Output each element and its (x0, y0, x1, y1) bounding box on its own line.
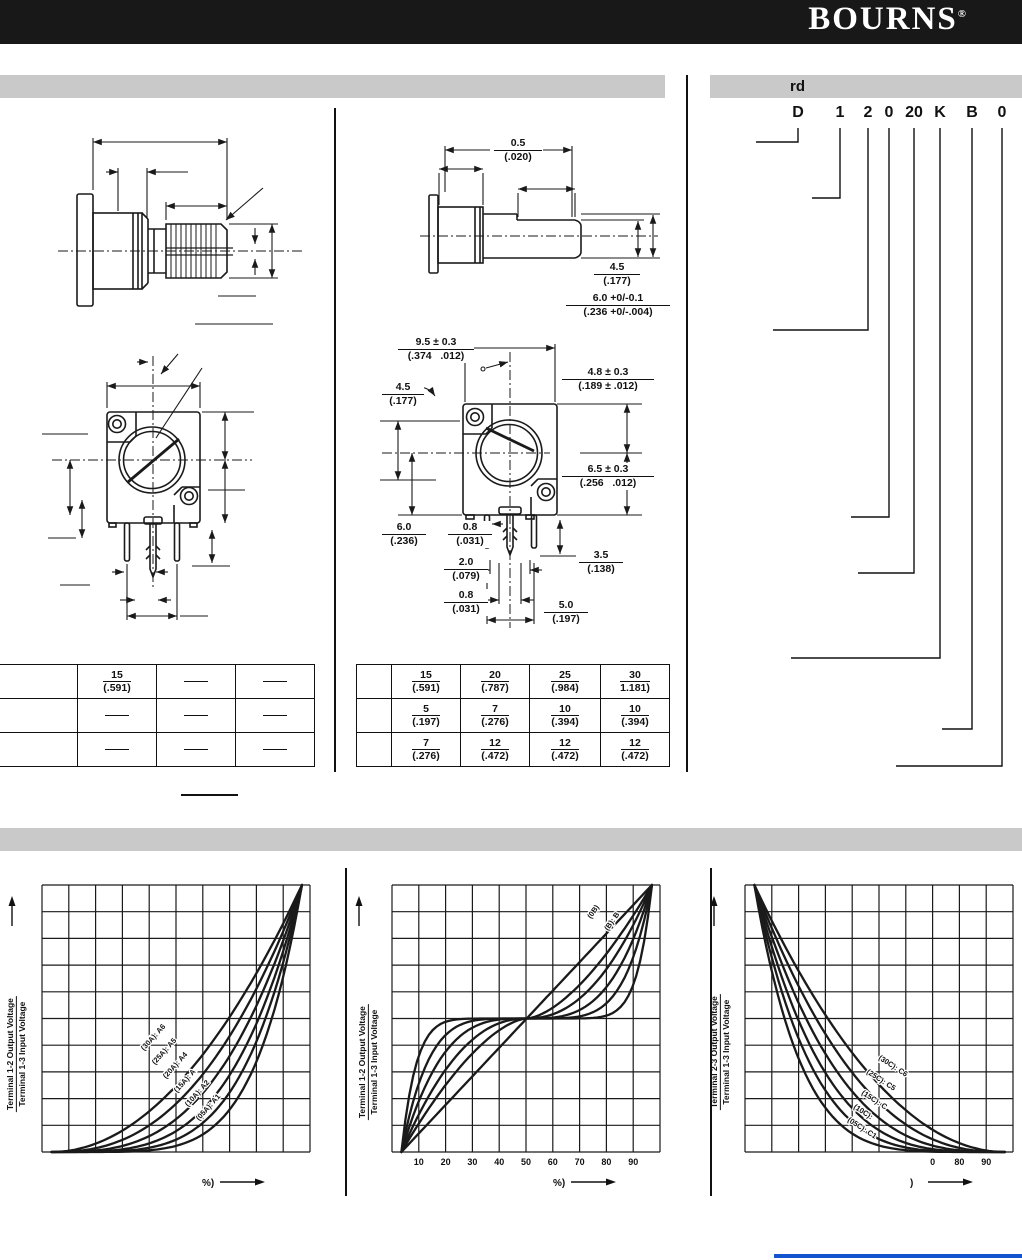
header-bar: BOURNS® (0, 0, 1022, 44)
table-cell (236, 699, 315, 733)
table-cell (236, 665, 315, 699)
x-tick-label: 30 (467, 1157, 477, 1167)
x-tick-label: 20 (441, 1157, 451, 1167)
blank-dash (263, 715, 287, 716)
x-tick-label: 90 (981, 1157, 991, 1167)
footnote-line (181, 794, 238, 796)
registered-mark: ® (958, 8, 966, 20)
table-cell (236, 733, 315, 767)
blank-dash (105, 715, 129, 716)
table-cell: 15(.591) (392, 665, 461, 699)
table-cell: 7(.276) (392, 733, 461, 767)
taper-chart-canvas: (0B)(B): B102030405060708090%) (347, 878, 687, 1206)
x-tick-label: 80 (601, 1157, 611, 1167)
x-axis-label: %) (202, 1178, 214, 1189)
dimension-fraction: 10(.394) (551, 703, 578, 728)
dim-label: 3.5(.138) (579, 549, 623, 576)
x-axis-arrow (255, 1179, 265, 1186)
dim-label: 4.5(.177) (382, 381, 424, 408)
table-cell: 12(.472) (461, 733, 530, 767)
y-axis-label: Terminal 1-2 Output Voltage Terminal 1-3… (5, 939, 27, 1169)
drawing-knurled-shaft-side-view (50, 128, 350, 343)
dimension-fraction: 7(.276) (481, 703, 508, 728)
table-cell: 20(.787) (461, 665, 530, 699)
datasheet-page: { "header": { "logo": "BOURNS", "registe… (0, 0, 1022, 1260)
part-number-leader-lines (690, 95, 1022, 785)
curve-label: (25C): C5 (865, 1067, 898, 1092)
taper-chart-linear-s: Terminal 1-2 Output Voltage Terminal 1-3… (347, 878, 687, 1208)
blank-dash (184, 681, 208, 682)
dim-label: 5.0(.197) (544, 599, 588, 626)
x-axis-label: %) (553, 1178, 565, 1189)
table-cell: 7(.276) (461, 699, 530, 733)
x-tick-label: 0 (930, 1157, 935, 1167)
table-cell: 15(.591) (78, 665, 157, 699)
blank-dash (263, 749, 287, 750)
dim-label: 6.0 +0/-0.1(.236 +0/-.004) (566, 292, 670, 319)
table-cell (0, 665, 78, 699)
taper-chart-reverse-audio: Terminal 2-3 Output Voltage Terminal 1-3… (702, 878, 1022, 1208)
column-divider (686, 75, 688, 772)
x-tick-label: 70 (575, 1157, 585, 1167)
x-tick-label: 80 (954, 1157, 964, 1167)
dimension-lines (42, 354, 254, 620)
taper-chart-audio: Terminal 1-2 Output Voltage Terminal 1-3… (2, 878, 342, 1208)
x-tick-label: 50 (521, 1157, 531, 1167)
y-axis-arrow (9, 896, 16, 906)
dimension-fraction: 10(.394) (621, 703, 648, 728)
dim-label: 4.8 ± 0.3(.189 ± .012) (562, 366, 654, 393)
table-cell (0, 699, 78, 733)
y-axis-arrow (711, 896, 718, 906)
x-tick-label: 60 (548, 1157, 558, 1167)
dimension-fraction: 12(.472) (621, 737, 648, 762)
dimension-table: 15(.591) (0, 664, 315, 767)
taper-chart-canvas: (30A): A6(25A): A5(20A): A4(15A): A(10A)… (2, 878, 342, 1206)
y-axis-arrow (356, 896, 363, 906)
table-cell: 301.181) (601, 665, 670, 699)
footer-accent-line (774, 1254, 1022, 1258)
table-cell (78, 733, 157, 767)
dim-label: 9.5 ± 0.3(.374 .012) (398, 336, 474, 363)
dimension-table-left: 15(.591) (0, 664, 315, 767)
x-tick-label: 90 (628, 1157, 638, 1167)
dim-label: 0.8(.031) (444, 589, 488, 616)
taper-section-bar (0, 828, 1022, 851)
dim-label: 4.5(.177) (594, 261, 640, 288)
y-axis-label: Terminal 1-2 Output Voltage Terminal 1-3… (357, 947, 379, 1177)
table-cell (157, 665, 236, 699)
logo-text: BOURNS (808, 1, 958, 37)
table-cell: 10(.394) (601, 699, 670, 733)
y-axis-label: Terminal 2-3 Output Voltage Terminal 1-3… (709, 937, 731, 1167)
dim-label: 6.0(.236) (382, 521, 426, 548)
drawing-front-view-left (40, 348, 340, 643)
blank-dash (184, 715, 208, 716)
dimension-lines (439, 146, 660, 258)
table-cell: 25(.984) (530, 665, 601, 699)
table-cell (357, 699, 392, 733)
dimension-fraction: 5(.197) (412, 703, 439, 728)
blank-dash (184, 749, 208, 750)
bourns-logo: BOURNS® (808, 1, 966, 38)
dimensions-section-bar (0, 75, 665, 98)
x-axis-arrow (963, 1179, 973, 1186)
x-axis-arrow (606, 1179, 616, 1186)
dimension-fraction: 12(.472) (481, 737, 508, 762)
dimension-fraction: 15(.591) (412, 669, 439, 694)
table-cell (357, 665, 392, 699)
dimension-fraction: 301.181) (620, 669, 650, 694)
table-cell: 5(.197) (392, 699, 461, 733)
dim-label: 6.5 ± 0.3(.256 .012) (562, 463, 654, 490)
taper-chart-canvas: (30C): C6(25C): C5(15C): C(10C):(05C): C… (702, 878, 1022, 1206)
table-cell: 10(.394) (530, 699, 601, 733)
table-cell (0, 733, 78, 767)
x-tick-label: 40 (494, 1157, 504, 1167)
table-cell: 12(.472) (530, 733, 601, 767)
dimension-table-right: 15(.591)20(.787)25(.984)301.181)5(.197)7… (356, 664, 670, 767)
dimension-fraction: 20(.787) (481, 669, 508, 694)
table-cell (78, 699, 157, 733)
table-cell (157, 699, 236, 733)
dim-label: 0.8(.031) (448, 521, 492, 548)
table-cell (157, 733, 236, 767)
blank-dash (263, 681, 287, 682)
x-tick-label: 10 (414, 1157, 424, 1167)
dimension-table: 15(.591)20(.787)25(.984)301.181)5(.197)7… (356, 664, 670, 767)
table-cell: 12(.472) (601, 733, 670, 767)
blank-dash (105, 749, 129, 750)
dimension-fraction: 12(.472) (551, 737, 578, 762)
dimension-fraction: 15(.591) (103, 669, 130, 694)
table-cell (357, 733, 392, 767)
x-axis-label: ) (910, 1178, 913, 1189)
dimension-fraction: 7(.276) (412, 737, 439, 762)
dim-label: 0.5(.020) (494, 137, 542, 164)
dim-label: 2.0(.079) (444, 556, 488, 583)
dimension-fraction: 25(.984) (551, 669, 578, 694)
